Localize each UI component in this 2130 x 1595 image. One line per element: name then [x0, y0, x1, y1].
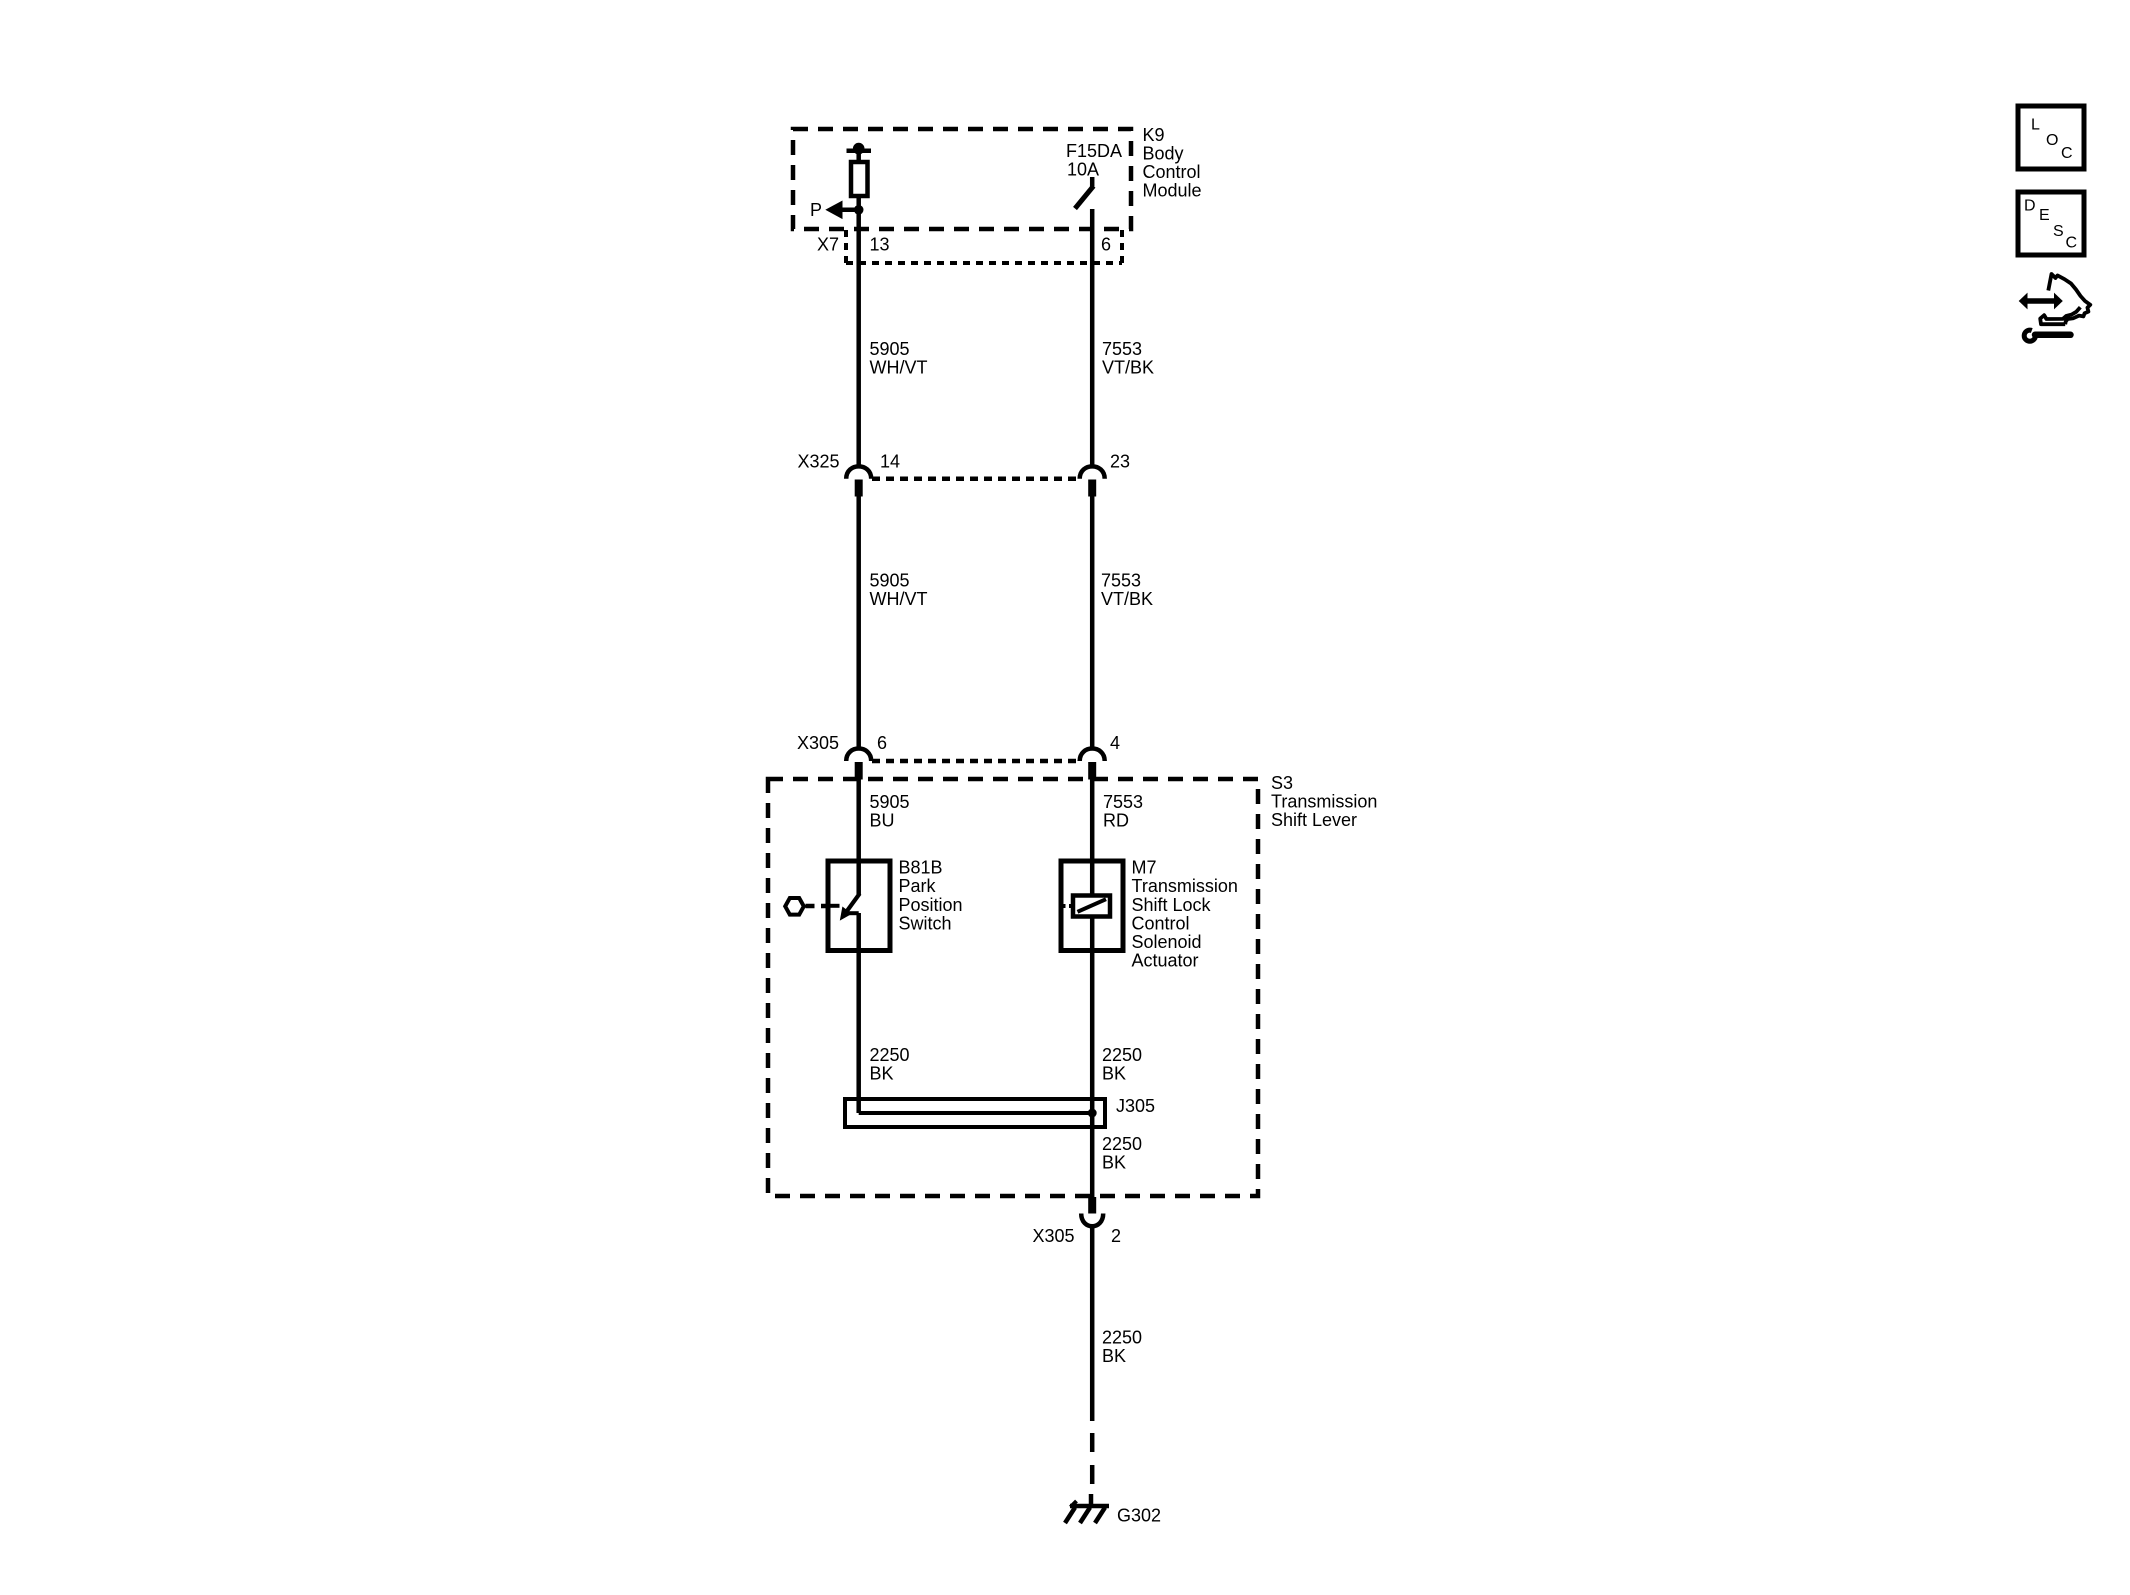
- svg-text:5905: 5905: [870, 792, 910, 812]
- svg-text:J305: J305: [1116, 1096, 1155, 1116]
- svg-text:BK: BK: [1102, 1153, 1126, 1173]
- svg-text:BK: BK: [1102, 1346, 1126, 1366]
- svg-text:Control: Control: [1132, 913, 1190, 933]
- svg-text:7553: 7553: [1101, 571, 1141, 591]
- svg-text:7553: 7553: [1103, 792, 1143, 812]
- svg-text:K9: K9: [1143, 125, 1165, 145]
- svg-text:X7: X7: [817, 235, 839, 255]
- svg-text:4: 4: [1110, 733, 1120, 753]
- svg-text:X325: X325: [797, 452, 839, 472]
- svg-text:M7: M7: [1132, 858, 1157, 878]
- svg-text:WH/VT: WH/VT: [870, 358, 928, 378]
- svg-text:C: C: [2066, 234, 2078, 251]
- svg-text:Transmission: Transmission: [1132, 876, 1238, 896]
- svg-text:Switch: Switch: [899, 913, 952, 933]
- svg-text:5905: 5905: [870, 339, 910, 359]
- svg-text:G302: G302: [1117, 1506, 1161, 1526]
- svg-text:7553: 7553: [1102, 339, 1142, 359]
- svg-text:6: 6: [1101, 235, 1111, 255]
- svg-text:VT/BK: VT/BK: [1101, 589, 1153, 609]
- svg-text:E: E: [2039, 207, 2050, 224]
- svg-text:Solenoid: Solenoid: [1132, 932, 1202, 952]
- svg-text:2: 2: [1111, 1226, 1121, 1246]
- svg-text:P: P: [810, 200, 822, 220]
- svg-text:D: D: [2024, 198, 2036, 215]
- svg-text:O: O: [2046, 132, 2058, 149]
- svg-text:Body: Body: [1143, 144, 1184, 164]
- svg-text:10A: 10A: [1067, 160, 1099, 180]
- svg-text:2250: 2250: [1102, 1134, 1142, 1154]
- svg-text:C: C: [2061, 145, 2073, 162]
- svg-text:Actuator: Actuator: [1132, 951, 1199, 971]
- svg-text:Shift Lock: Shift Lock: [1132, 895, 1212, 915]
- svg-text:Control: Control: [1143, 162, 1201, 182]
- svg-text:5905: 5905: [870, 571, 910, 591]
- svg-text:13: 13: [870, 235, 890, 255]
- svg-text:X305: X305: [1032, 1226, 1074, 1246]
- svg-text:23: 23: [1110, 452, 1130, 472]
- svg-text:Position: Position: [899, 895, 963, 915]
- svg-text:BU: BU: [870, 811, 895, 831]
- svg-text:Module: Module: [1143, 181, 1202, 201]
- svg-text:6: 6: [877, 733, 887, 753]
- svg-text:2250: 2250: [1102, 1045, 1142, 1065]
- svg-text:Shift Lever: Shift Lever: [1271, 810, 1357, 830]
- svg-text:B81B: B81B: [899, 858, 943, 878]
- svg-text:2250: 2250: [1102, 1328, 1142, 1348]
- svg-text:14: 14: [880, 452, 900, 472]
- svg-text:VT/BK: VT/BK: [1102, 358, 1154, 378]
- svg-text:2250: 2250: [870, 1045, 910, 1065]
- svg-text:BK: BK: [1102, 1064, 1126, 1084]
- svg-text:Park: Park: [899, 876, 937, 896]
- svg-text:X305: X305: [797, 733, 839, 753]
- svg-text:WH/VT: WH/VT: [870, 589, 928, 609]
- svg-text:Transmission: Transmission: [1271, 792, 1377, 812]
- svg-text:L: L: [2031, 117, 2040, 134]
- svg-text:S3: S3: [1271, 773, 1293, 793]
- svg-text:RD: RD: [1103, 811, 1129, 831]
- svg-text:BK: BK: [870, 1064, 894, 1084]
- svg-text:S: S: [2053, 223, 2064, 240]
- svg-text:F15DA: F15DA: [1066, 141, 1122, 161]
